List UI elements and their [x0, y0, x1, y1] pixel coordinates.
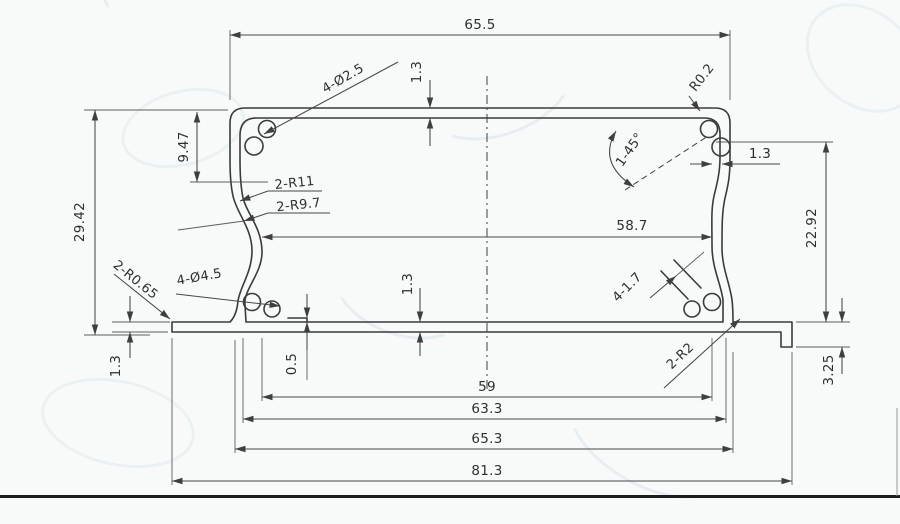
dim-right-height: 22.92: [716, 142, 833, 322]
dim-label-overall-width: 81.3: [471, 463, 502, 479]
dim-top-width: 65.5: [230, 17, 730, 100]
callout-base-holes: 4-Ø4.5: [176, 266, 280, 306]
dim-label-bottom-wall: 1.3: [400, 273, 416, 295]
callout-label-s-radius-outer: 2-R11: [274, 174, 315, 193]
callout-label-corner-radius: R0.2: [687, 61, 718, 95]
dim-label-top-wall: 1.3: [409, 61, 425, 83]
dim-label-top-width: 65.5: [464, 17, 495, 33]
callout-label-flange-fillet-left: 2-R0.65: [110, 258, 161, 303]
callout-slot: 4-1.7: [610, 252, 704, 305]
dim-right-wall-thickness: 1.3: [690, 146, 780, 164]
profile-drawing-svg: 65.5 1.3 4-Ø2.5 R0.2 1-45° 1.3 9.47: [0, 0, 900, 500]
callout-label-slot: 4-1.7: [610, 270, 645, 305]
scanned-technical-drawing: { "drawing": { "type": "extrusion-profil…: [0, 0, 900, 500]
screw-boss-top-left: [245, 121, 276, 156]
callout-flange-fillet-right: 2-R2: [664, 319, 740, 388]
dim-label-chamfer: 1-45°: [613, 130, 647, 169]
callout-flange-fillet-left: 2-R0.65: [110, 258, 170, 319]
dim-chamfer-angle: 1-45°: [610, 130, 647, 187]
dim-label-base-width-outer: 65.3: [471, 431, 502, 447]
dim-top-wall-thickness: 1.3: [409, 61, 430, 146]
dim-boss-depth: 9.47: [176, 112, 268, 182]
dim-label-floor-width: 59: [478, 379, 496, 395]
screw-boss-bottom-right: [661, 260, 721, 317]
dim-flange-thickness: 1.3: [108, 296, 170, 377]
callout-label-base-holes: 4-Ø4.5: [176, 266, 224, 289]
dim-label-flange-lip: 3.25: [821, 354, 837, 385]
dim-label-right-wall: 1.3: [749, 146, 771, 162]
callout-corner-holes: 4-Ø2.5: [264, 61, 398, 134]
dim-label-left-height: 29.42: [72, 202, 88, 242]
drawing-sheet: 65.5 1.3 4-Ø2.5 R0.2 1-45° 1.3 9.47: [0, 0, 900, 500]
dim-label-right-height: 22.92: [804, 208, 820, 248]
callout-s-radius-inner: 2-R9.7: [178, 196, 330, 230]
dim-label-inner-width: 58.7: [616, 218, 647, 234]
dim-label-boss-depth: 9.47: [176, 131, 192, 162]
dim-label-flange-thickness: 1.3: [108, 355, 124, 377]
dim-label-floor-step: 0.5: [284, 353, 300, 375]
callout-label-s-radius-inner: 2-R9.7: [276, 196, 322, 216]
dim-bottom-wall-thickness: 1.3: [400, 273, 420, 356]
dim-flange-lip: 3.25: [796, 298, 850, 386]
dim-floor-step: 0.5: [284, 294, 307, 380]
dim-label-base-width-inner: 63.3: [471, 401, 502, 417]
profile-outline: [172, 108, 792, 347]
callout-corner-radius: R0.2: [687, 61, 718, 111]
callout-label-flange-fillet-right: 2-R2: [664, 340, 697, 372]
